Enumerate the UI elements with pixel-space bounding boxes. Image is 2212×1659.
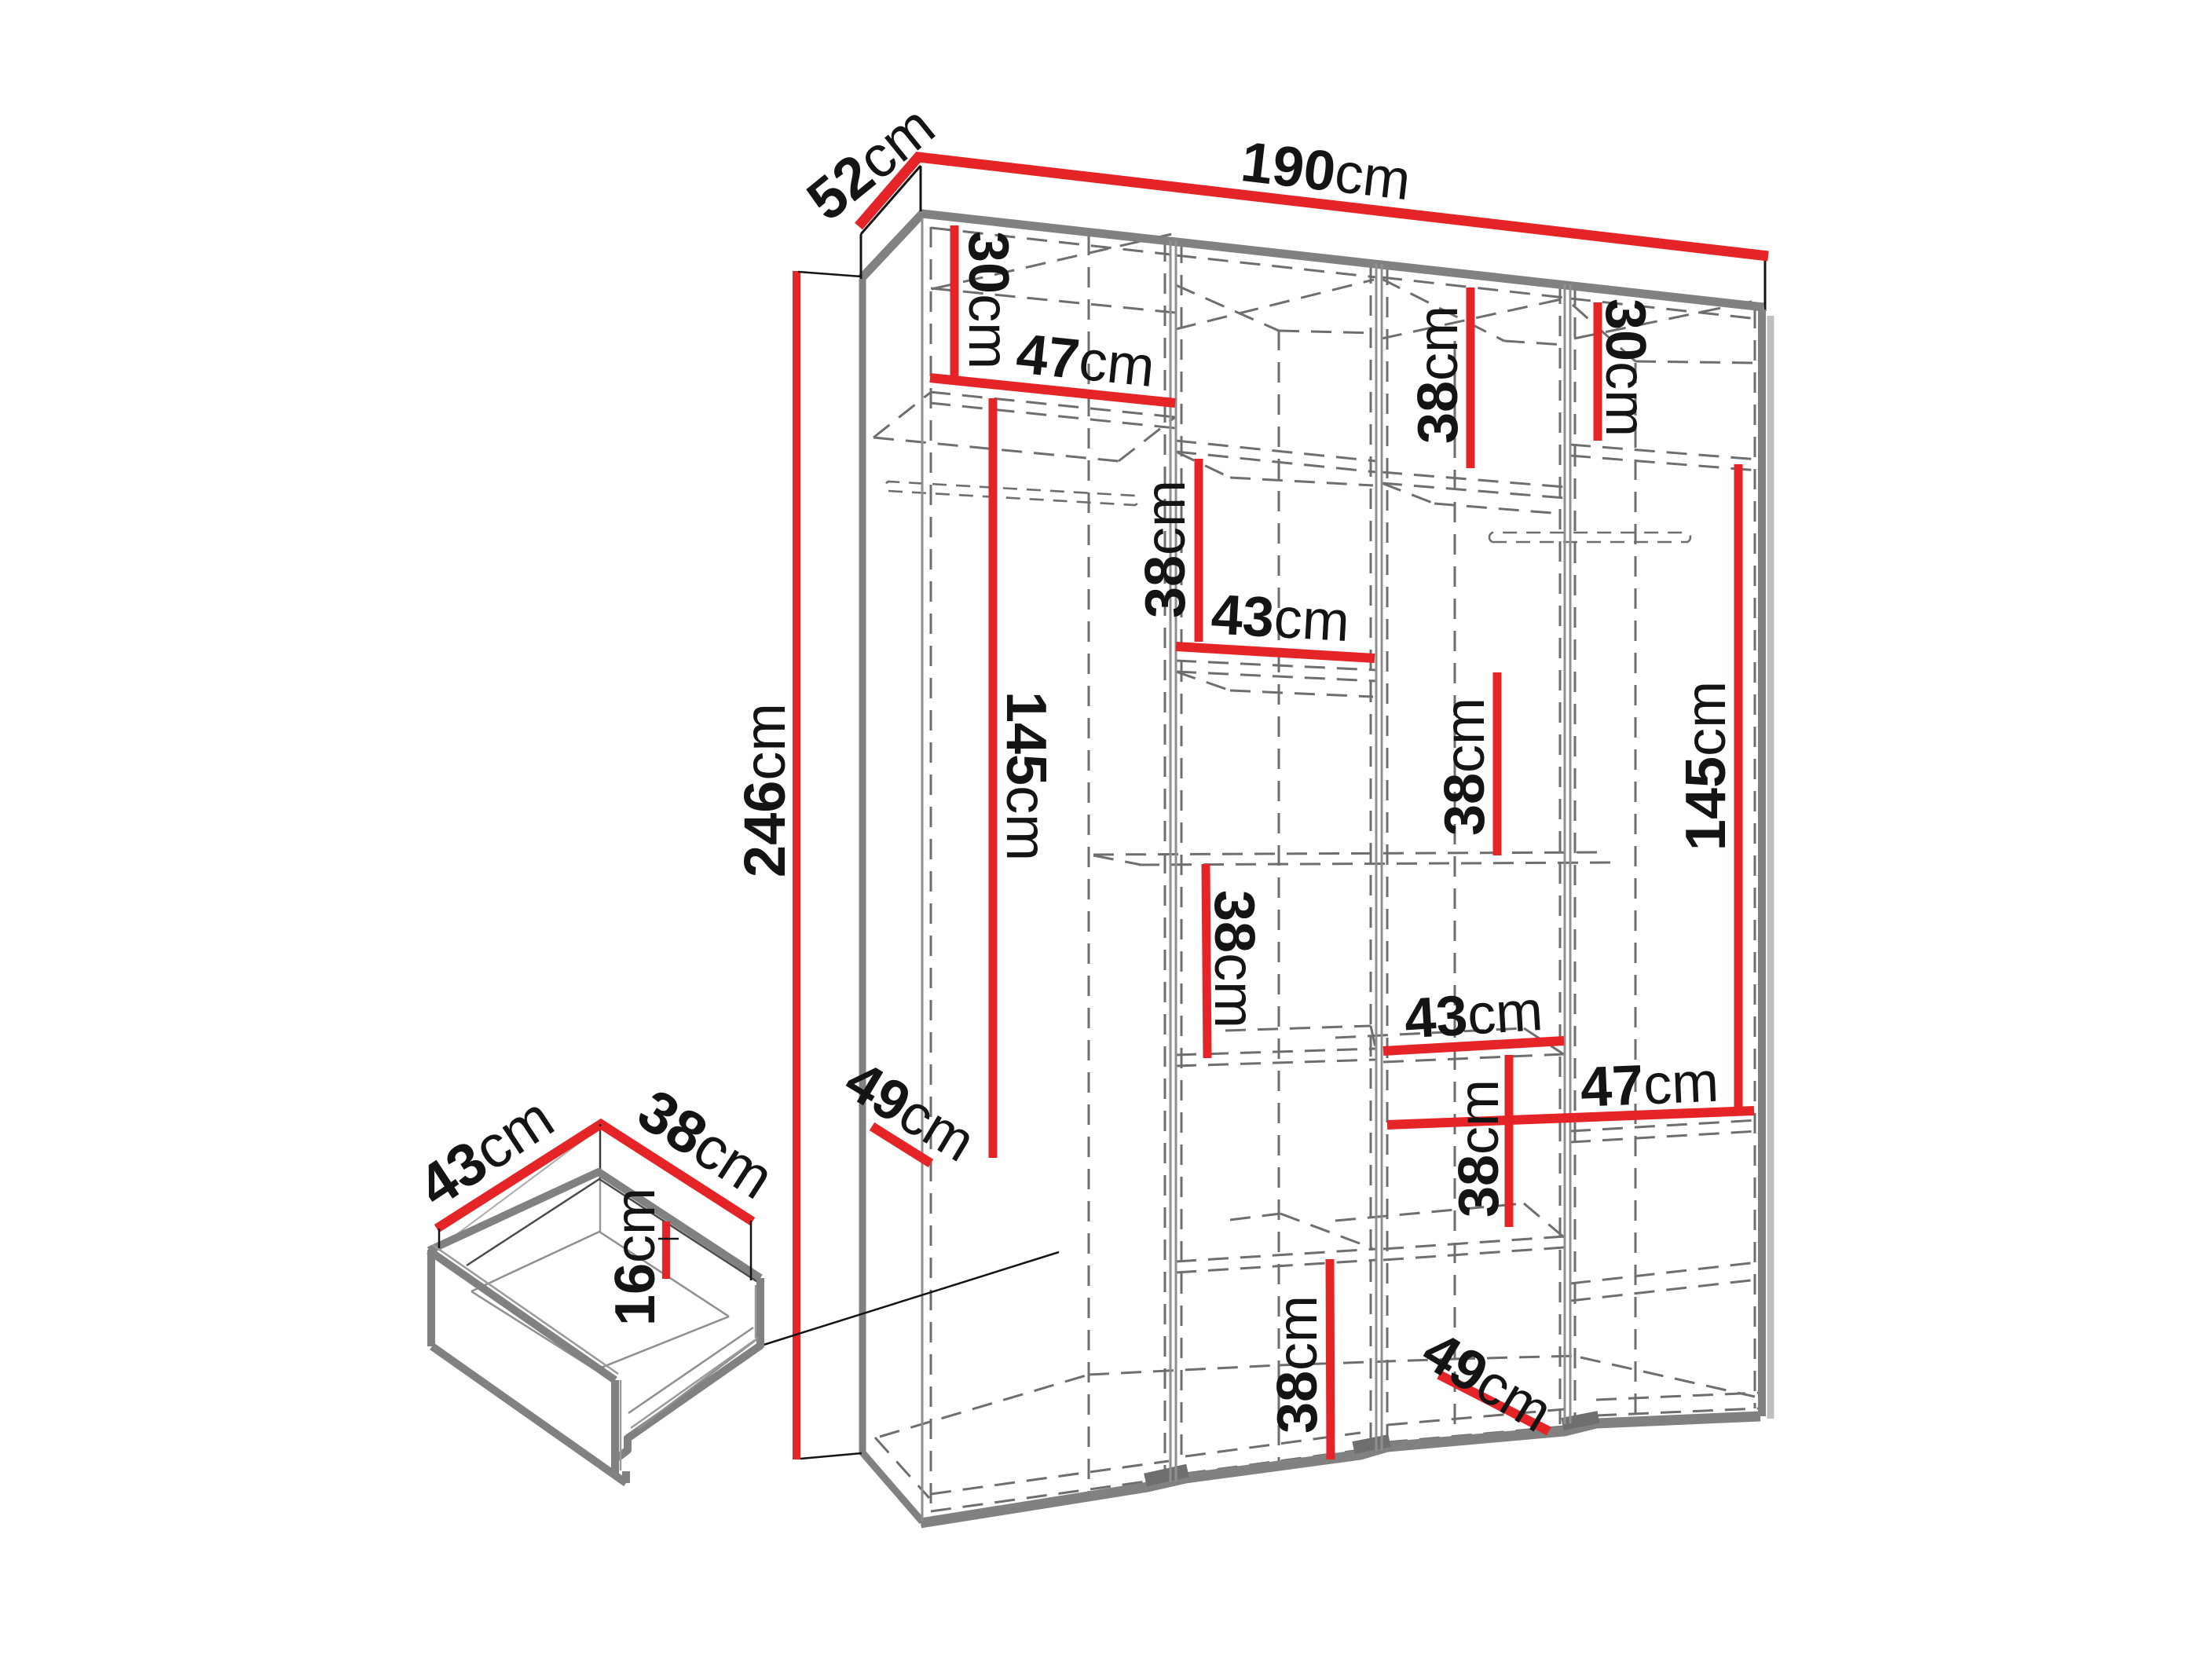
svg-text:38cm: 38cm	[1203, 890, 1265, 1028]
svg-text:30cm: 30cm	[1594, 298, 1657, 437]
svg-text:43cm: 43cm	[1403, 980, 1545, 1051]
svg-text:38cm: 38cm	[1407, 306, 1470, 444]
svg-text:43cm: 43cm	[1210, 583, 1351, 654]
svg-text:246cm: 246cm	[732, 703, 797, 877]
svg-text:145cm: 145cm	[1675, 681, 1738, 851]
svg-text:145cm: 145cm	[994, 691, 1057, 861]
svg-text:38cm: 38cm	[1134, 480, 1197, 618]
svg-text:47cm: 47cm	[1579, 1051, 1719, 1119]
svg-text:38cm: 38cm	[1266, 1295, 1329, 1434]
svg-text:16cm: 16cm	[604, 1188, 667, 1326]
svg-text:38cm: 38cm	[1448, 1079, 1511, 1218]
svg-text:38cm: 38cm	[1434, 698, 1496, 836]
svg-text:30cm: 30cm	[957, 231, 1020, 369]
